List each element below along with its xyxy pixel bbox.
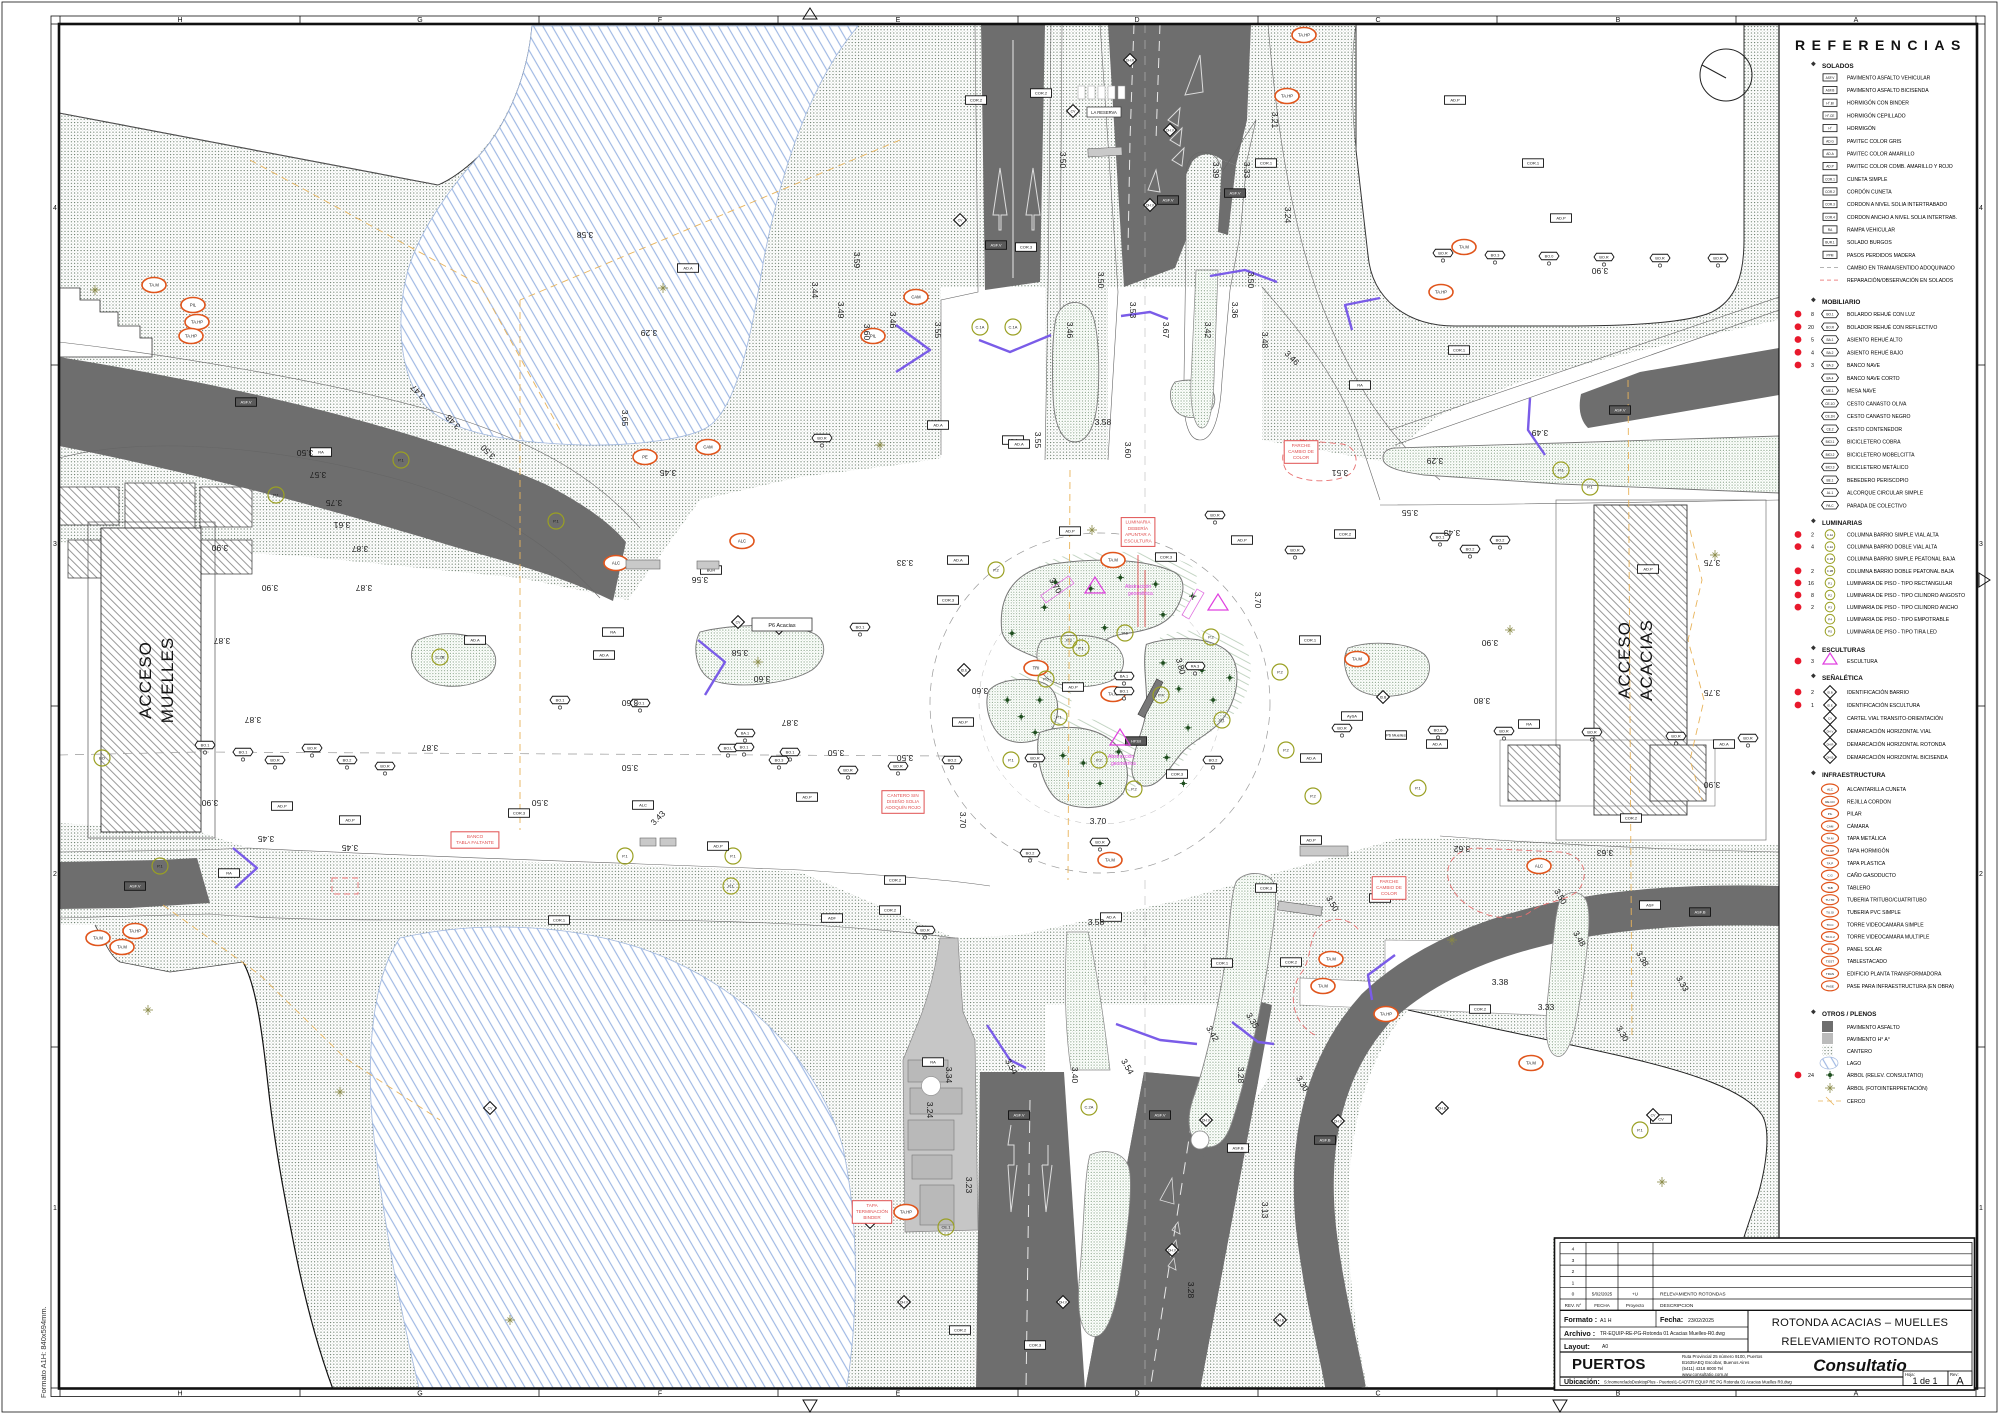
svg-text:RELEVAMIENTO ROTONDAS: RELEVAMIENTO ROTONDAS bbox=[1660, 1292, 1726, 1298]
svg-text:TA.M: TA.M bbox=[1827, 837, 1834, 841]
svg-text:BA.1: BA.1 bbox=[1120, 674, 1128, 678]
svg-text:3.65: 3.65 bbox=[620, 410, 630, 427]
svg-text:3.87: 3.87 bbox=[213, 636, 230, 646]
svg-text:CESTO CONTENEDOR: CESTO CONTENEDOR bbox=[1847, 427, 1902, 433]
svg-text:8: 8 bbox=[1811, 593, 1814, 599]
svg-text:TRI: TRI bbox=[1033, 666, 1040, 671]
svg-text:3.34: 3.34 bbox=[944, 1067, 954, 1084]
svg-text:BO.R: BO.R bbox=[1826, 325, 1834, 329]
svg-text:TO.C.2: TO.C.2 bbox=[1825, 935, 1835, 939]
svg-text:IDENTIFICACIÓN BARRIO: IDENTIFICACIÓN BARRIO bbox=[1847, 689, 1909, 696]
svg-text:DEMARCACIÓN HORIZONTAL ROTONDA: DEMARCACIÓN HORIZONTAL ROTONDA bbox=[1847, 741, 1946, 748]
svg-text:Formato A1H: 840x594mm.: Formato A1H: 840x594mm. bbox=[39, 1306, 48, 1398]
svg-text:TA.HP: TA.HP bbox=[1826, 849, 1835, 853]
svg-text:BO.R: BO.R bbox=[307, 746, 317, 750]
svg-text:Consultatio: Consultatio bbox=[1813, 1356, 1907, 1375]
svg-text:CV: CV bbox=[958, 218, 963, 222]
svg-text:P.1: P.1 bbox=[1078, 646, 1084, 651]
svg-text:EDIFICIO PLANTA TRANSFORMADORA: EDIFICIO PLANTA TRANSFORMADORA bbox=[1847, 972, 1942, 978]
svg-text:TU.TR: TU.TR bbox=[1826, 898, 1836, 902]
svg-text:CESTO CANASTO NEGRO: CESTO CANASTO NEGRO bbox=[1847, 414, 1911, 420]
svg-text:COR.3: COR.3 bbox=[1029, 1343, 1042, 1348]
svg-text:3.33: 3.33 bbox=[896, 558, 913, 568]
svg-text:TAPA: TAPA bbox=[866, 1203, 878, 1208]
svg-text:BANCO NAVE CORTO: BANCO NAVE CORTO bbox=[1847, 376, 1900, 382]
svg-text:ME.1: ME.1 bbox=[1826, 389, 1834, 393]
svg-text:TA.M: TA.M bbox=[1459, 245, 1469, 250]
svg-text:ID.E: ID.E bbox=[1827, 703, 1833, 707]
svg-text:BANCO NAVE: BANCO NAVE bbox=[1847, 363, 1881, 369]
svg-text:DH.V: DH.V bbox=[1166, 128, 1175, 132]
svg-text:BO.1: BO.1 bbox=[786, 750, 795, 754]
svg-text:RA.3: RA.3 bbox=[1191, 664, 1199, 668]
svg-text:CV: CV bbox=[736, 620, 741, 624]
svg-text:ROTONDA ACACIAS – MUELLES: ROTONDA ACACIAS – MUELLES bbox=[1772, 1317, 1948, 1329]
svg-text:TA.HP: TA.HP bbox=[1281, 94, 1293, 99]
svg-text:3.55: 3.55 bbox=[933, 322, 943, 339]
svg-text:COR.2: COR.2 bbox=[954, 1328, 967, 1333]
svg-text:ASF.B: ASF.B bbox=[1319, 1138, 1330, 1143]
svg-text:BO.1: BO.1 bbox=[556, 698, 565, 702]
svg-text:3.90: 3.90 bbox=[1591, 266, 1608, 276]
svg-text:DH.V: DH.V bbox=[1168, 1248, 1177, 1252]
svg-text:COR.3: COR.3 bbox=[1171, 772, 1184, 777]
svg-text:AD.A: AD.A bbox=[470, 638, 480, 643]
svg-text:CORDON ANCHO A NIVEL SOLIA INT: CORDON ANCHO A NIVEL SOLIA INTERTRAB. bbox=[1847, 215, 1957, 221]
svg-text:PILAR: PILAR bbox=[1847, 812, 1862, 818]
svg-text:CARTEL VIAL TRANSITO-ORIENTACI: CARTEL VIAL TRANSITO-ORIENTACIÓN bbox=[1847, 715, 1943, 722]
svg-text:ALCORQUE CIRCULAR SIMPLE: ALCORQUE CIRCULAR SIMPLE bbox=[1847, 491, 1924, 497]
svg-text:4: 4 bbox=[53, 205, 57, 212]
svg-text:P.0: P.0 bbox=[1043, 677, 1049, 682]
svg-text:P.2: P.2 bbox=[1096, 758, 1102, 763]
svg-text:4: 4 bbox=[1811, 350, 1814, 356]
svg-text:Layout:: Layout: bbox=[1564, 1342, 1590, 1351]
svg-text:BO.1: BO.1 bbox=[239, 750, 248, 754]
svg-text:COR.1: COR.1 bbox=[1260, 161, 1273, 166]
svg-text:BO.L: BO.L bbox=[724, 746, 733, 750]
svg-text:3.36: 3.36 bbox=[1230, 302, 1240, 319]
svg-text:AD.P: AD.P bbox=[1065, 529, 1075, 534]
svg-text:3.70: 3.70 bbox=[958, 812, 968, 829]
svg-text:TA.M: TA.M bbox=[1105, 858, 1115, 863]
svg-text:3: 3 bbox=[53, 541, 57, 548]
svg-text:3.50: 3.50 bbox=[621, 763, 638, 773]
svg-text:COR.3: COR.3 bbox=[942, 598, 955, 603]
svg-text:16: 16 bbox=[1808, 581, 1814, 587]
svg-text:3.49: 3.49 bbox=[836, 302, 846, 319]
svg-text:C.2B: C.2B bbox=[436, 655, 445, 660]
svg-text:ADF: ADF bbox=[828, 916, 837, 921]
svg-text:ÁRBOL (RELEV. CONSULTATIO): ÁRBOL (RELEV. CONSULTATIO) bbox=[1847, 1072, 1923, 1079]
svg-text:3.87: 3.87 bbox=[355, 583, 372, 593]
svg-text:CESTO CANASTO OLIVA: CESTO CANASTO OLIVA bbox=[1847, 401, 1907, 407]
svg-text:RA: RA bbox=[930, 1060, 936, 1065]
svg-text:ADOQUÍN ROJO: ADOQUÍN ROJO bbox=[885, 804, 921, 810]
svg-text:P.1: P.1 bbox=[1219, 718, 1225, 723]
svg-text:3.70: 3.70 bbox=[1090, 816, 1107, 826]
svg-text:P.2: P.2 bbox=[1310, 794, 1316, 799]
svg-text:3.80: 3.80 bbox=[1473, 696, 1490, 706]
svg-text:3.60: 3.60 bbox=[621, 698, 638, 708]
svg-text:C.1A: C.1A bbox=[976, 325, 985, 330]
svg-text:3.63: 3.63 bbox=[1596, 848, 1613, 858]
svg-text:CÁMARA: CÁMARA bbox=[1847, 823, 1869, 830]
svg-text:DH.V: DH.V bbox=[1827, 729, 1834, 733]
svg-text:DH.R: DH.R bbox=[1126, 58, 1135, 62]
svg-text:3.90: 3.90 bbox=[201, 798, 218, 808]
svg-text:3.58: 3.58 bbox=[1088, 917, 1105, 927]
svg-text:CUNETA SIMPLE: CUNETA SIMPLE bbox=[1847, 177, 1888, 183]
svg-text:A: A bbox=[1854, 17, 1859, 24]
svg-text:AD.P: AD.P bbox=[345, 818, 355, 823]
svg-text:Abstracción: Abstracción bbox=[1125, 584, 1151, 590]
svg-text:3.60: 3.60 bbox=[1123, 442, 1133, 459]
svg-text:4: 4 bbox=[1979, 205, 1983, 212]
svg-text:PAVIMENTO ASFALTO BICISENDA: PAVIMENTO ASFALTO BICISENDA bbox=[1847, 88, 1929, 94]
svg-text:3.13: 3.13 bbox=[1260, 1202, 1270, 1219]
svg-text:AD.P: AD.P bbox=[1237, 538, 1247, 543]
svg-text:RA: RA bbox=[1526, 722, 1532, 727]
svg-text:BO.R: BO.R bbox=[1655, 256, 1665, 260]
svg-text:P.1: P.1 bbox=[1637, 1128, 1643, 1133]
svg-text:Ubicación:: Ubicación: bbox=[1564, 1379, 1600, 1386]
svg-text:TU.SI: TU.SI bbox=[1826, 911, 1834, 915]
svg-text:3.58: 3.58 bbox=[1095, 417, 1112, 427]
svg-text:CANTERO: CANTERO bbox=[1847, 1049, 1872, 1055]
svg-text:DH.B: DH.B bbox=[1438, 1106, 1447, 1110]
svg-text:AD.P: AD.P bbox=[1826, 165, 1833, 169]
svg-text:TA.M: TA.M bbox=[1108, 558, 1118, 563]
svg-text:PIL: PIL bbox=[1828, 812, 1833, 816]
svg-text:3.60: 3.60 bbox=[971, 686, 988, 696]
svg-text:E: E bbox=[896, 17, 901, 24]
svg-text:COR.1: COR.1 bbox=[553, 918, 566, 923]
svg-text:4: 4 bbox=[1572, 1247, 1575, 1253]
svg-text:3.45: 3.45 bbox=[659, 468, 676, 478]
svg-text:COLUMNA BARRIO SIMPLE VIAL ALT: COLUMNA BARRIO SIMPLE VIAL ALTA bbox=[1847, 533, 1939, 539]
svg-text:3.29: 3.29 bbox=[640, 328, 657, 338]
svg-text:3.49: 3.49 bbox=[1531, 428, 1548, 438]
svg-text:PAVIMENTO H° A°: PAVIMENTO H° A° bbox=[1847, 1037, 1890, 1043]
svg-text:A: A bbox=[1854, 1391, 1859, 1398]
svg-text:3.50: 3.50 bbox=[1096, 272, 1106, 289]
svg-text:LUMINARIA DE PISO - TIPO CILIN: LUMINARIA DE PISO - TIPO CILINDRO ANGOST… bbox=[1847, 593, 1965, 599]
svg-text:3.39: 3.39 bbox=[1211, 162, 1221, 179]
svg-text:TO.C: TO.C bbox=[1826, 923, 1834, 927]
svg-text:ASF.V: ASF.V bbox=[129, 884, 140, 889]
svg-text:2: 2 bbox=[1811, 605, 1814, 611]
svg-text:CORDON A NIVEL SOLIA INTERTRAB: CORDON A NIVEL SOLIA INTERTRABADO bbox=[1847, 202, 1947, 208]
svg-text:AD.P: AD.P bbox=[1450, 98, 1460, 103]
svg-text:D: D bbox=[1134, 17, 1139, 24]
svg-text:3.55: 3.55 bbox=[1033, 432, 1043, 449]
svg-text:TR-EQUIP-RE-PG-Rotonda 01 Acac: TR-EQUIP-RE-PG-Rotonda 01 Acacias Muelle… bbox=[1600, 1331, 1725, 1337]
svg-text:BO.R: BO.R bbox=[1713, 256, 1723, 260]
svg-text:P.2: P.2 bbox=[1277, 670, 1283, 675]
svg-text:BUR.1: BUR.1 bbox=[1825, 241, 1835, 245]
svg-text:P.3: P.3 bbox=[1122, 631, 1128, 636]
svg-text:ID.B: ID.B bbox=[1827, 690, 1833, 694]
svg-text:HORMIGÓN: HORMIGÓN bbox=[1847, 125, 1876, 132]
svg-text:TABLERO: TABLERO bbox=[1847, 885, 1870, 891]
svg-text:REPARACIÓN/OBSERVACIÓN EN SOLA: REPARACIÓN/OBSERVACIÓN EN SOLADOS bbox=[1847, 277, 1954, 284]
svg-text:BO.1: BO.1 bbox=[1826, 313, 1833, 317]
svg-text:CAM: CAM bbox=[703, 445, 713, 450]
svg-text:P.1: P.1 bbox=[273, 493, 279, 498]
svg-text:H°.BI: H°.BI bbox=[1826, 101, 1834, 105]
svg-text:3.45: 3.45 bbox=[341, 843, 358, 853]
svg-text:3.90: 3.90 bbox=[211, 543, 228, 553]
svg-text:BA.2: BA.2 bbox=[1827, 351, 1834, 355]
svg-text:TERMINACIÓN: TERMINACIÓN bbox=[856, 1208, 888, 1214]
svg-text:BOLARDO REHUÉ CON LUZ: BOLARDO REHUÉ CON LUZ bbox=[1847, 311, 1915, 318]
svg-text:Proyecto: Proyecto bbox=[1626, 1303, 1645, 1308]
svg-text:TA.M: TA.M bbox=[117, 945, 127, 950]
svg-text:COR.1: COR.1 bbox=[1216, 961, 1229, 966]
svg-text:CV: CV bbox=[1828, 716, 1832, 720]
svg-text:BO.R: BO.R bbox=[1499, 729, 1509, 733]
svg-text:P6 Acacias: P6 Acacias bbox=[768, 623, 795, 629]
svg-text:COR.2: COR.2 bbox=[970, 98, 983, 103]
svg-text:geométrica: geométrica bbox=[1111, 761, 1136, 767]
svg-text:COR.3: COR.3 bbox=[1260, 886, 1273, 891]
svg-text:3.51: 3.51 bbox=[1331, 468, 1348, 478]
svg-text:BA.4: BA.4 bbox=[1827, 376, 1834, 380]
svg-text:HORMIGÓN CON BINDER: HORMIGÓN CON BINDER bbox=[1847, 100, 1909, 107]
svg-text:3.50: 3.50 bbox=[1058, 152, 1068, 169]
svg-text:AD.A: AD.A bbox=[1014, 442, 1024, 447]
svg-text:2: 2 bbox=[1811, 533, 1814, 539]
svg-text:23/02/2025: 23/02/2025 bbox=[1688, 1318, 1714, 1324]
svg-text:REV. N°: REV. N° bbox=[1565, 1303, 1582, 1308]
svg-text:2: 2 bbox=[53, 871, 57, 878]
svg-text:TA.M: TA.M bbox=[1326, 957, 1336, 962]
svg-text:BO.2: BO.2 bbox=[343, 758, 352, 762]
svg-text:2: 2 bbox=[1811, 569, 1814, 575]
svg-text:F: F bbox=[658, 17, 662, 24]
svg-text:DH.V: DH.V bbox=[1334, 1119, 1343, 1123]
svg-text:BO.R: BO.R bbox=[893, 764, 903, 768]
svg-text:3.23: 3.23 bbox=[964, 1177, 974, 1194]
svg-text:www.consultatio.com.ar: www.consultatio.com.ar bbox=[1682, 1372, 1729, 1377]
svg-text:3.60: 3.60 bbox=[753, 674, 770, 684]
svg-text:3.33: 3.33 bbox=[1242, 162, 1252, 179]
svg-text:ESCULTURAS: ESCULTURAS bbox=[1822, 647, 1866, 654]
svg-text:PUERTOS: PUERTOS bbox=[1572, 1356, 1646, 1373]
svg-text:A: A bbox=[1956, 1376, 1964, 1388]
svg-text:H: H bbox=[177, 1391, 182, 1398]
svg-text:TA.M: TA.M bbox=[93, 936, 103, 941]
svg-text:3.29: 3.29 bbox=[1426, 456, 1443, 466]
svg-text:COR.2: COR.2 bbox=[1339, 532, 1352, 537]
svg-text:RA: RA bbox=[1357, 383, 1363, 388]
svg-text:1 de 1: 1 de 1 bbox=[1912, 1376, 1937, 1386]
svg-text:3.56: 3.56 bbox=[691, 575, 708, 585]
svg-text:P.5: P.5 bbox=[1828, 630, 1832, 634]
svg-text:P.2: P.2 bbox=[993, 568, 999, 573]
svg-text:RE.CO: RE.CO bbox=[1825, 800, 1835, 804]
svg-text:4: 4 bbox=[1811, 545, 1814, 551]
svg-text:BO.R: BO.R bbox=[1210, 513, 1220, 517]
svg-text:BO.2: BO.2 bbox=[1209, 758, 1218, 762]
svg-text:BO.R: BO.R bbox=[817, 436, 827, 440]
svg-text:TABLESTACADO: TABLESTACADO bbox=[1847, 959, 1887, 965]
svg-text:3.70: 3.70 bbox=[1253, 592, 1263, 609]
svg-text:ALC: ALC bbox=[1827, 788, 1834, 792]
svg-text:DH.R: DH.R bbox=[1827, 742, 1834, 746]
svg-text:LUMINARIA DE PISO - TIPO CILIN: LUMINARIA DE PISO - TIPO CILINDRO ANCHO bbox=[1847, 605, 1958, 611]
svg-text:LA RESERVA: LA RESERVA bbox=[1091, 110, 1117, 115]
svg-text:3.90: 3.90 bbox=[1481, 638, 1498, 648]
svg-text:COR.2: COR.2 bbox=[889, 878, 902, 883]
svg-text:COR.2: COR.2 bbox=[1825, 190, 1835, 194]
svg-text:geométrica: geométrica bbox=[1128, 591, 1153, 597]
svg-text:AD.P: AD.P bbox=[958, 720, 968, 725]
svg-text:P.3: P.3 bbox=[1828, 606, 1832, 610]
svg-text:PS: PS bbox=[1828, 947, 1832, 951]
svg-text:PAVIMENTO ASFALTO: PAVIMENTO ASFALTO bbox=[1847, 1025, 1900, 1031]
svg-text:PARADA DE COLECTIVO: PARADA DE COLECTIVO bbox=[1847, 503, 1907, 509]
svg-text:3.28: 3.28 bbox=[1236, 1067, 1246, 1084]
svg-text:5/02/2025: 5/02/2025 bbox=[1592, 1292, 1613, 1297]
svg-text:BO.1: BO.1 bbox=[740, 745, 749, 749]
svg-text:AD.A: AD.A bbox=[1826, 152, 1834, 156]
svg-text:TA.HP: TA.HP bbox=[1435, 290, 1447, 295]
svg-text:3.59: 3.59 bbox=[852, 252, 862, 269]
svg-text:COR.3: COR.3 bbox=[1020, 245, 1033, 250]
svg-text:3.42: 3.42 bbox=[1203, 322, 1213, 339]
svg-text:AD.P: AD.P bbox=[802, 795, 812, 800]
svg-text:AD.A: AD.A bbox=[1719, 742, 1729, 747]
svg-text:P.1: P.1 bbox=[1415, 786, 1421, 791]
svg-text:BO.1: BO.1 bbox=[1120, 689, 1129, 693]
svg-text:3.87: 3.87 bbox=[244, 715, 261, 725]
svg-text:P.4: P.4 bbox=[1828, 618, 1832, 622]
svg-text:CORDÓN CUNETA: CORDÓN CUNETA bbox=[1847, 188, 1892, 195]
svg-text:ASF.V: ASF.V bbox=[990, 243, 1001, 248]
svg-text:P.4: P.4 bbox=[1158, 693, 1164, 698]
svg-text:AD.A: AD.A bbox=[1432, 742, 1442, 747]
svg-text:3.50: 3.50 bbox=[827, 748, 844, 758]
svg-text:PPM: PPM bbox=[1827, 253, 1834, 257]
svg-text:P.3: P.3 bbox=[1066, 638, 1072, 643]
svg-text:ACCESO: ACCESO bbox=[1615, 621, 1634, 699]
svg-text:TA.HP: TA.HP bbox=[191, 320, 203, 325]
svg-text:3.87: 3.87 bbox=[421, 743, 438, 753]
svg-text:3.58: 3.58 bbox=[731, 648, 748, 658]
svg-text:P.1: P.1 bbox=[730, 854, 736, 859]
svg-text:2: 2 bbox=[1811, 690, 1814, 696]
svg-text:HORMIGÓN CEPILLADO: HORMIGÓN CEPILLADO bbox=[1847, 112, 1906, 119]
svg-text:ALCANTARILLA CUNETA: ALCANTARILLA CUNETA bbox=[1847, 787, 1907, 793]
svg-text:B: B bbox=[1616, 1391, 1621, 1398]
svg-text:RA: RA bbox=[318, 450, 324, 455]
svg-text:LUMINARIAS: LUMINARIAS bbox=[1822, 520, 1863, 527]
svg-text:P.2: P.2 bbox=[1828, 593, 1832, 597]
svg-text:DISEÑO SOLIA: DISEÑO SOLIA bbox=[887, 798, 920, 804]
svg-text:(5411) 4318 8000 Tel: (5411) 4318 8000 Tel bbox=[1682, 1366, 1723, 1371]
svg-text:BA.1: BA.1 bbox=[1827, 338, 1834, 342]
svg-text:C.2B: C.2B bbox=[1827, 569, 1833, 573]
svg-text:LUMINARIA DE PISO - TIPO TIRA: LUMINARIA DE PISO - TIPO TIRA LED bbox=[1847, 629, 1937, 635]
svg-text:ÁRBOL (FOTOINTERPRETACIÓN): ÁRBOL (FOTOINTERPRETACIÓN) bbox=[1847, 1085, 1928, 1092]
svg-text:BO.R: BO.R bbox=[843, 768, 853, 772]
svg-text:INFRAESTRUCTURA: INFRAESTRUCTURA bbox=[1822, 772, 1886, 779]
svg-text:BICI.2: BICI.2 bbox=[1826, 453, 1835, 457]
svg-text:AySA: AySA bbox=[1347, 714, 1357, 719]
svg-text:BA.3: BA.3 bbox=[1827, 364, 1834, 368]
svg-text:3.87: 3.87 bbox=[781, 718, 798, 728]
svg-text:AL.1: AL.1 bbox=[1827, 491, 1834, 495]
svg-text:CV: CV bbox=[1071, 109, 1076, 113]
svg-text:REJILLA CORDON: REJILLA CORDON bbox=[1847, 799, 1891, 805]
svg-text:F: F bbox=[658, 1391, 662, 1398]
svg-text:C.2A: C.2A bbox=[1827, 545, 1833, 549]
svg-text:BO.R: BO.R bbox=[1743, 736, 1753, 740]
svg-text:BO.2: BO.2 bbox=[948, 758, 957, 762]
svg-text:PAVIMENTO ASFALTO VEHICULAR: PAVIMENTO ASFALTO VEHICULAR bbox=[1847, 75, 1931, 81]
svg-text:CAMBIO DE: CAMBIO DE bbox=[1376, 885, 1402, 890]
svg-text:CE.1O: CE.1O bbox=[1825, 402, 1835, 406]
svg-text:BO.R: BO.R bbox=[920, 928, 930, 932]
svg-text:3.50: 3.50 bbox=[896, 753, 913, 763]
svg-text:BO.1: BO.1 bbox=[1436, 535, 1445, 539]
svg-text:3.67: 3.67 bbox=[1161, 322, 1171, 339]
svg-text:BO.3: BO.3 bbox=[1491, 253, 1500, 257]
svg-text:D: D bbox=[1134, 1391, 1139, 1398]
svg-text:LUMINARIA DE PISO - TIPO EMPOT: LUMINARIA DE PISO - TIPO EMPOTRABLE bbox=[1847, 617, 1950, 623]
svg-text:BO.1: BO.1 bbox=[201, 743, 210, 747]
svg-text:CAÑO GASODUCTO: CAÑO GASODUCTO bbox=[1847, 872, 1896, 879]
svg-text:C: C bbox=[1375, 17, 1380, 24]
svg-text:P.2: P.2 bbox=[1283, 748, 1289, 753]
svg-text:COR.1: COR.1 bbox=[1453, 348, 1466, 353]
svg-text:ASF.B: ASF.B bbox=[1694, 910, 1705, 915]
svg-text:TA.M: TA.M bbox=[1318, 984, 1328, 989]
svg-text:APUNTAR A: APUNTAR A bbox=[1125, 532, 1152, 537]
svg-text:LUMINARIA: LUMINARIA bbox=[1125, 520, 1151, 525]
svg-text:P.1: P.1 bbox=[1587, 485, 1593, 490]
svg-text:ASF.V: ASF.V bbox=[1154, 1113, 1165, 1118]
svg-text:3.38: 3.38 bbox=[1492, 977, 1509, 987]
svg-text:SEÑALÉTICA: SEÑALÉTICA bbox=[1822, 673, 1863, 682]
svg-text:DESCRIPCION: DESCRIPCION bbox=[1660, 1303, 1694, 1309]
svg-text:PAVITEC COLOR GRIS: PAVITEC COLOR GRIS bbox=[1847, 139, 1902, 145]
svg-text:BO.2: BO.2 bbox=[1026, 851, 1035, 855]
svg-text:LAGO: LAGO bbox=[1847, 1061, 1861, 1067]
svg-text:ESCULTURA: ESCULTURA bbox=[1124, 538, 1152, 543]
svg-text:TAPA PLASTICA: TAPA PLASTICA bbox=[1847, 861, 1886, 867]
svg-text:CAM: CAM bbox=[1827, 824, 1834, 828]
svg-text:COR.1: COR.1 bbox=[1825, 177, 1835, 181]
svg-text:PAVITEC COLOR COMB. AMARILLO Y: PAVITEC COLOR COMB. AMARILLO Y ROJO bbox=[1847, 164, 1953, 170]
svg-text:TA.HP: TA.HP bbox=[1380, 1012, 1392, 1017]
svg-text:BICICLETERO COBRA: BICICLETERO COBRA bbox=[1847, 440, 1901, 446]
svg-text:RA: RA bbox=[226, 871, 232, 876]
svg-text:1: 1 bbox=[1811, 703, 1814, 709]
svg-text:AD.P: AD.P bbox=[1556, 216, 1566, 221]
svg-text:COLOR: COLOR bbox=[1293, 455, 1310, 460]
svg-text:3.50: 3.50 bbox=[296, 448, 313, 458]
svg-text:C.G: C.G bbox=[1827, 874, 1833, 878]
svg-text:ALC: ALC bbox=[738, 539, 746, 544]
svg-text:BE.1: BE.1 bbox=[1827, 478, 1834, 482]
svg-text:AD.G: AD.G bbox=[1826, 139, 1834, 143]
svg-text:BOLADOR REHUÉ CON REFLECTIVO: BOLADOR REHUÉ CON REFLECTIVO bbox=[1847, 324, 1937, 331]
svg-text:ASF.V: ASF.V bbox=[1826, 76, 1836, 80]
svg-text:C.2A: C.2A bbox=[1085, 1105, 1094, 1110]
